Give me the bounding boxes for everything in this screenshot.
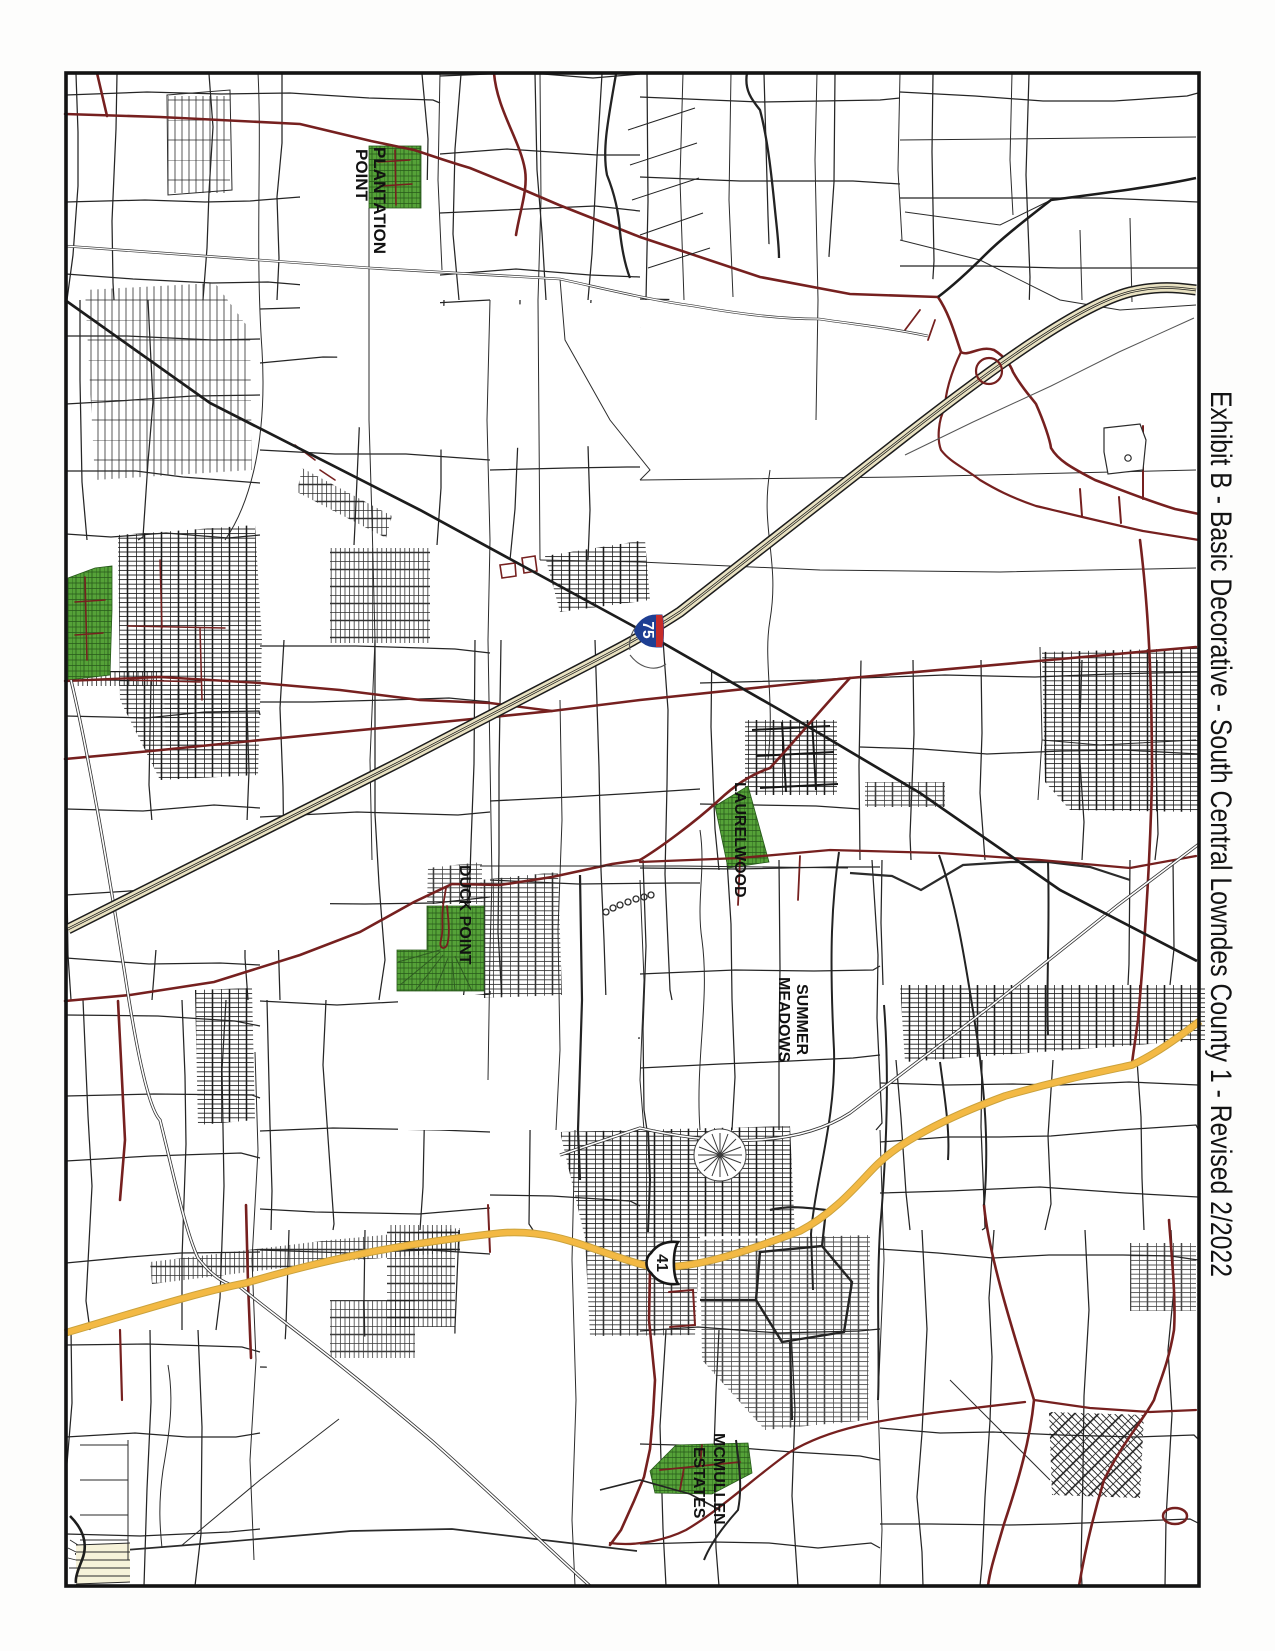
svg-text:SUMMER: SUMMER [793,984,810,1056]
svg-text:41: 41 [653,1254,670,1272]
svg-text:Exhibit B - Basic Decorative -: Exhibit B - Basic Decorative - South Cen… [1204,391,1237,1277]
svg-text:MCMULLEN: MCMULLEN [710,1433,727,1525]
svg-text:DUCK POINT: DUCK POINT [456,865,473,965]
svg-text:ESTATES: ESTATES [690,1447,707,1519]
svg-text:POINT: POINT [352,149,371,202]
svg-text:LAURELWOOD: LAURELWOOD [731,782,748,898]
svg-text:75: 75 [639,621,656,639]
svg-text:PLANTATION: PLANTATION [370,147,389,254]
svg-text:MEADOWS: MEADOWS [775,977,792,1063]
